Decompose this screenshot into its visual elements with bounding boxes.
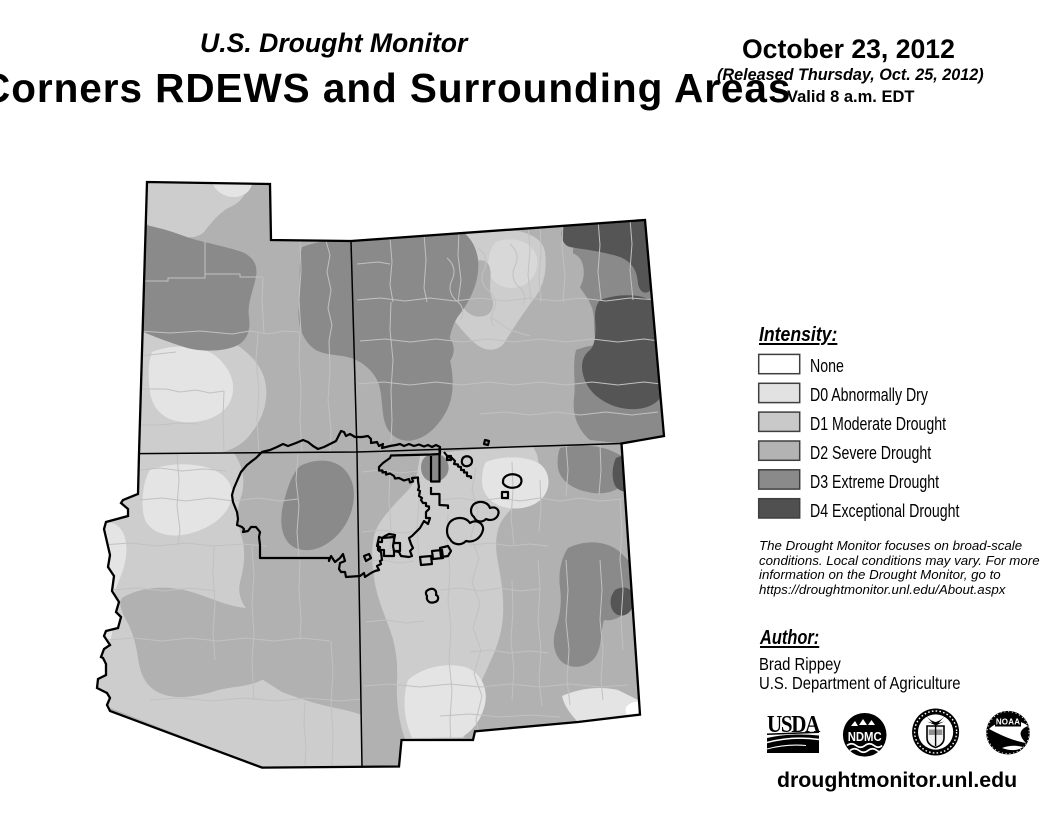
svg-text:NOAA: NOAA bbox=[996, 718, 1020, 727]
svg-text:NDMC: NDMC bbox=[848, 730, 882, 744]
